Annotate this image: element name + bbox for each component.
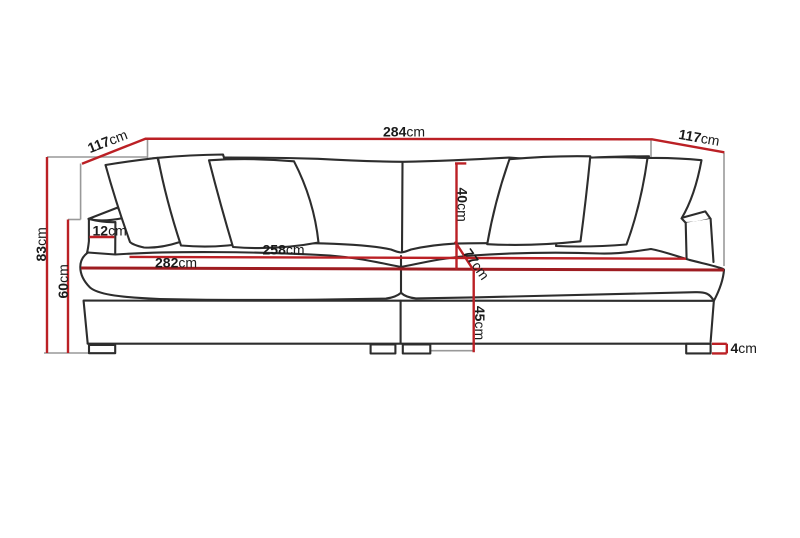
svg-text:284cm: 284cm <box>383 124 425 140</box>
svg-text:45cm: 45cm <box>472 306 488 340</box>
svg-text:83cm: 83cm <box>33 227 49 261</box>
svg-text:282cm: 282cm <box>155 255 197 271</box>
svg-text:40cm: 40cm <box>455 188 471 222</box>
svg-text:60cm: 60cm <box>55 264 71 298</box>
svg-text:4cm: 4cm <box>731 340 757 356</box>
svg-text:12cm: 12cm <box>93 223 127 239</box>
svg-text:258cm: 258cm <box>263 241 305 257</box>
